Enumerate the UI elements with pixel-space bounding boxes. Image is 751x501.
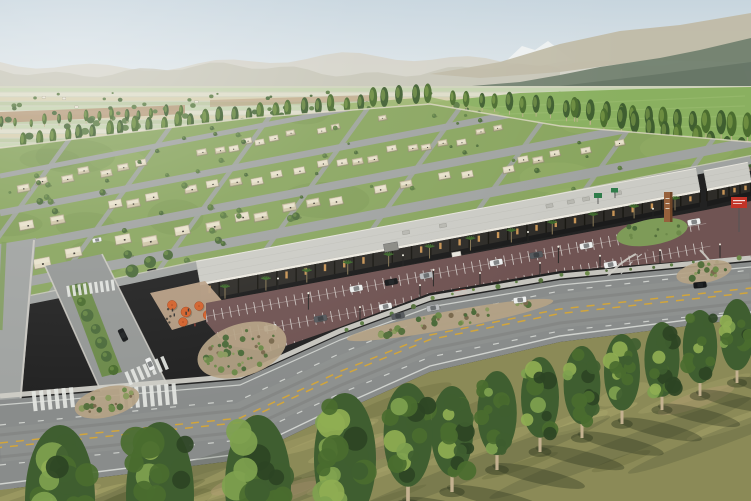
sun-haze bbox=[0, 0, 751, 501]
render-canvas bbox=[0, 0, 751, 501]
aerial-render bbox=[0, 0, 751, 501]
